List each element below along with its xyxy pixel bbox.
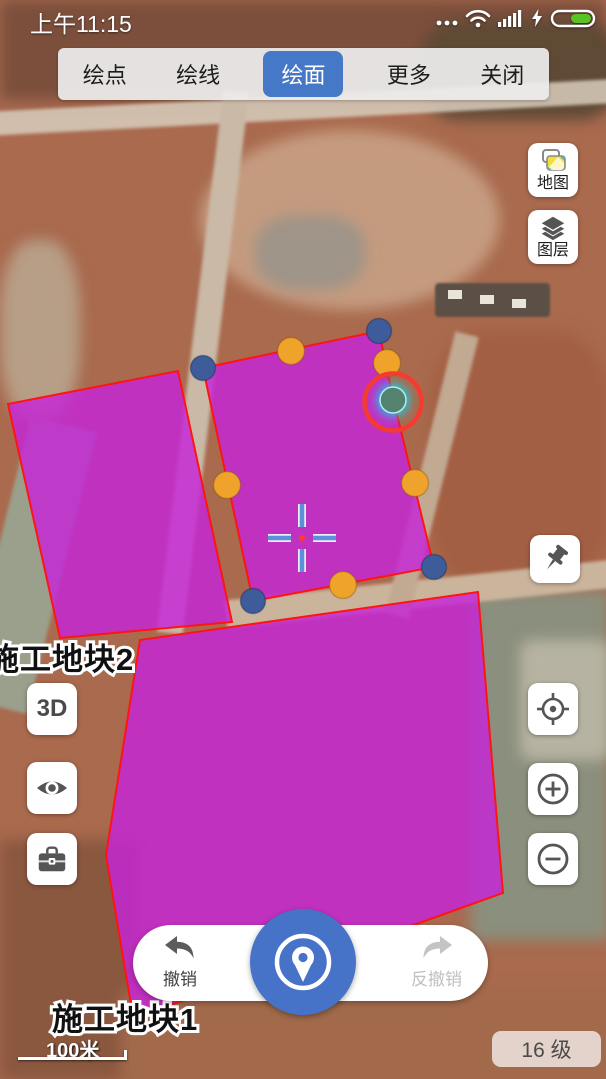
- signal-bars-icon: [498, 8, 524, 28]
- vertex-handle[interactable]: [191, 356, 216, 381]
- zoom-out-icon: [536, 842, 570, 876]
- charging-bolt-icon: [531, 8, 543, 28]
- tab-more[interactable]: 更多: [381, 51, 437, 97]
- tab-draw-polygon[interactable]: 绘面: [263, 51, 343, 97]
- add-location-button[interactable]: [250, 909, 356, 1015]
- pushpin-button[interactable]: [530, 535, 580, 583]
- map-app-screen: 施工地块2 施工地块1 上午11:15: [0, 0, 606, 1079]
- midpoint-handle[interactable]: [402, 470, 429, 497]
- visibility-button[interactable]: [27, 762, 77, 814]
- redo-label: 反撤销: [411, 965, 462, 990]
- zoom-level-badge: 16 级: [492, 1031, 601, 1067]
- redo-button[interactable]: 反撤销: [411, 934, 462, 990]
- scale-bar: [18, 1050, 127, 1060]
- undo-button[interactable]: 撤销: [163, 934, 197, 990]
- midpoint-handle[interactable]: [214, 472, 241, 499]
- status-icons: [436, 8, 596, 28]
- draw-toolbar: 绘点 绘线 绘面 更多 关闭: [58, 48, 549, 100]
- plot-polygon-left[interactable]: [8, 371, 232, 638]
- midpoint-handle[interactable]: [330, 572, 357, 599]
- location-pin-icon: [271, 930, 335, 994]
- tab-draw-line[interactable]: 绘线: [170, 51, 226, 97]
- layers-label: 图层: [537, 242, 569, 260]
- battery-icon: [550, 8, 596, 28]
- midpoint-handle[interactable]: [278, 338, 305, 365]
- selected-vertex-handle[interactable]: [380, 387, 406, 413]
- map-switch-icon: [538, 148, 568, 174]
- crosshair-center-dot: [299, 535, 305, 541]
- vertex-handle[interactable]: [241, 589, 266, 614]
- pushpin-icon: [539, 543, 571, 575]
- tab-close[interactable]: 关闭: [474, 51, 530, 97]
- status-bar: 上午11:15: [0, 0, 606, 36]
- layers-icon: [539, 215, 567, 241]
- undo-label: 撤销: [163, 965, 197, 990]
- zoom-out-button[interactable]: [528, 833, 578, 885]
- three-d-label: 3D: [37, 695, 68, 723]
- map-type-label: 地图: [537, 175, 569, 193]
- redo-arrow-icon: [420, 934, 454, 964]
- toolbox-icon: [35, 843, 69, 875]
- three-d-button[interactable]: 3D: [27, 683, 77, 735]
- undo-arrow-icon: [163, 934, 197, 964]
- zoom-in-icon: [536, 772, 570, 806]
- locate-button[interactable]: [528, 683, 578, 735]
- layers-button[interactable]: 图层: [528, 210, 578, 264]
- vertex-handle[interactable]: [422, 555, 447, 580]
- wifi-icon: [465, 8, 491, 28]
- ellipsis-icon: [436, 8, 458, 28]
- clock-text: 上午11:15: [30, 5, 132, 39]
- eye-icon: [34, 773, 70, 803]
- toolbox-button[interactable]: [27, 833, 77, 885]
- map-type-button[interactable]: 地图: [528, 143, 578, 197]
- zoom-in-button[interactable]: [528, 763, 578, 815]
- tab-draw-point[interactable]: 绘点: [77, 51, 133, 97]
- plot-label-2: 施工地块2: [0, 634, 134, 679]
- locate-icon: [536, 692, 570, 726]
- vertex-handle[interactable]: [367, 319, 392, 344]
- plot-polygon-active[interactable]: [203, 331, 434, 601]
